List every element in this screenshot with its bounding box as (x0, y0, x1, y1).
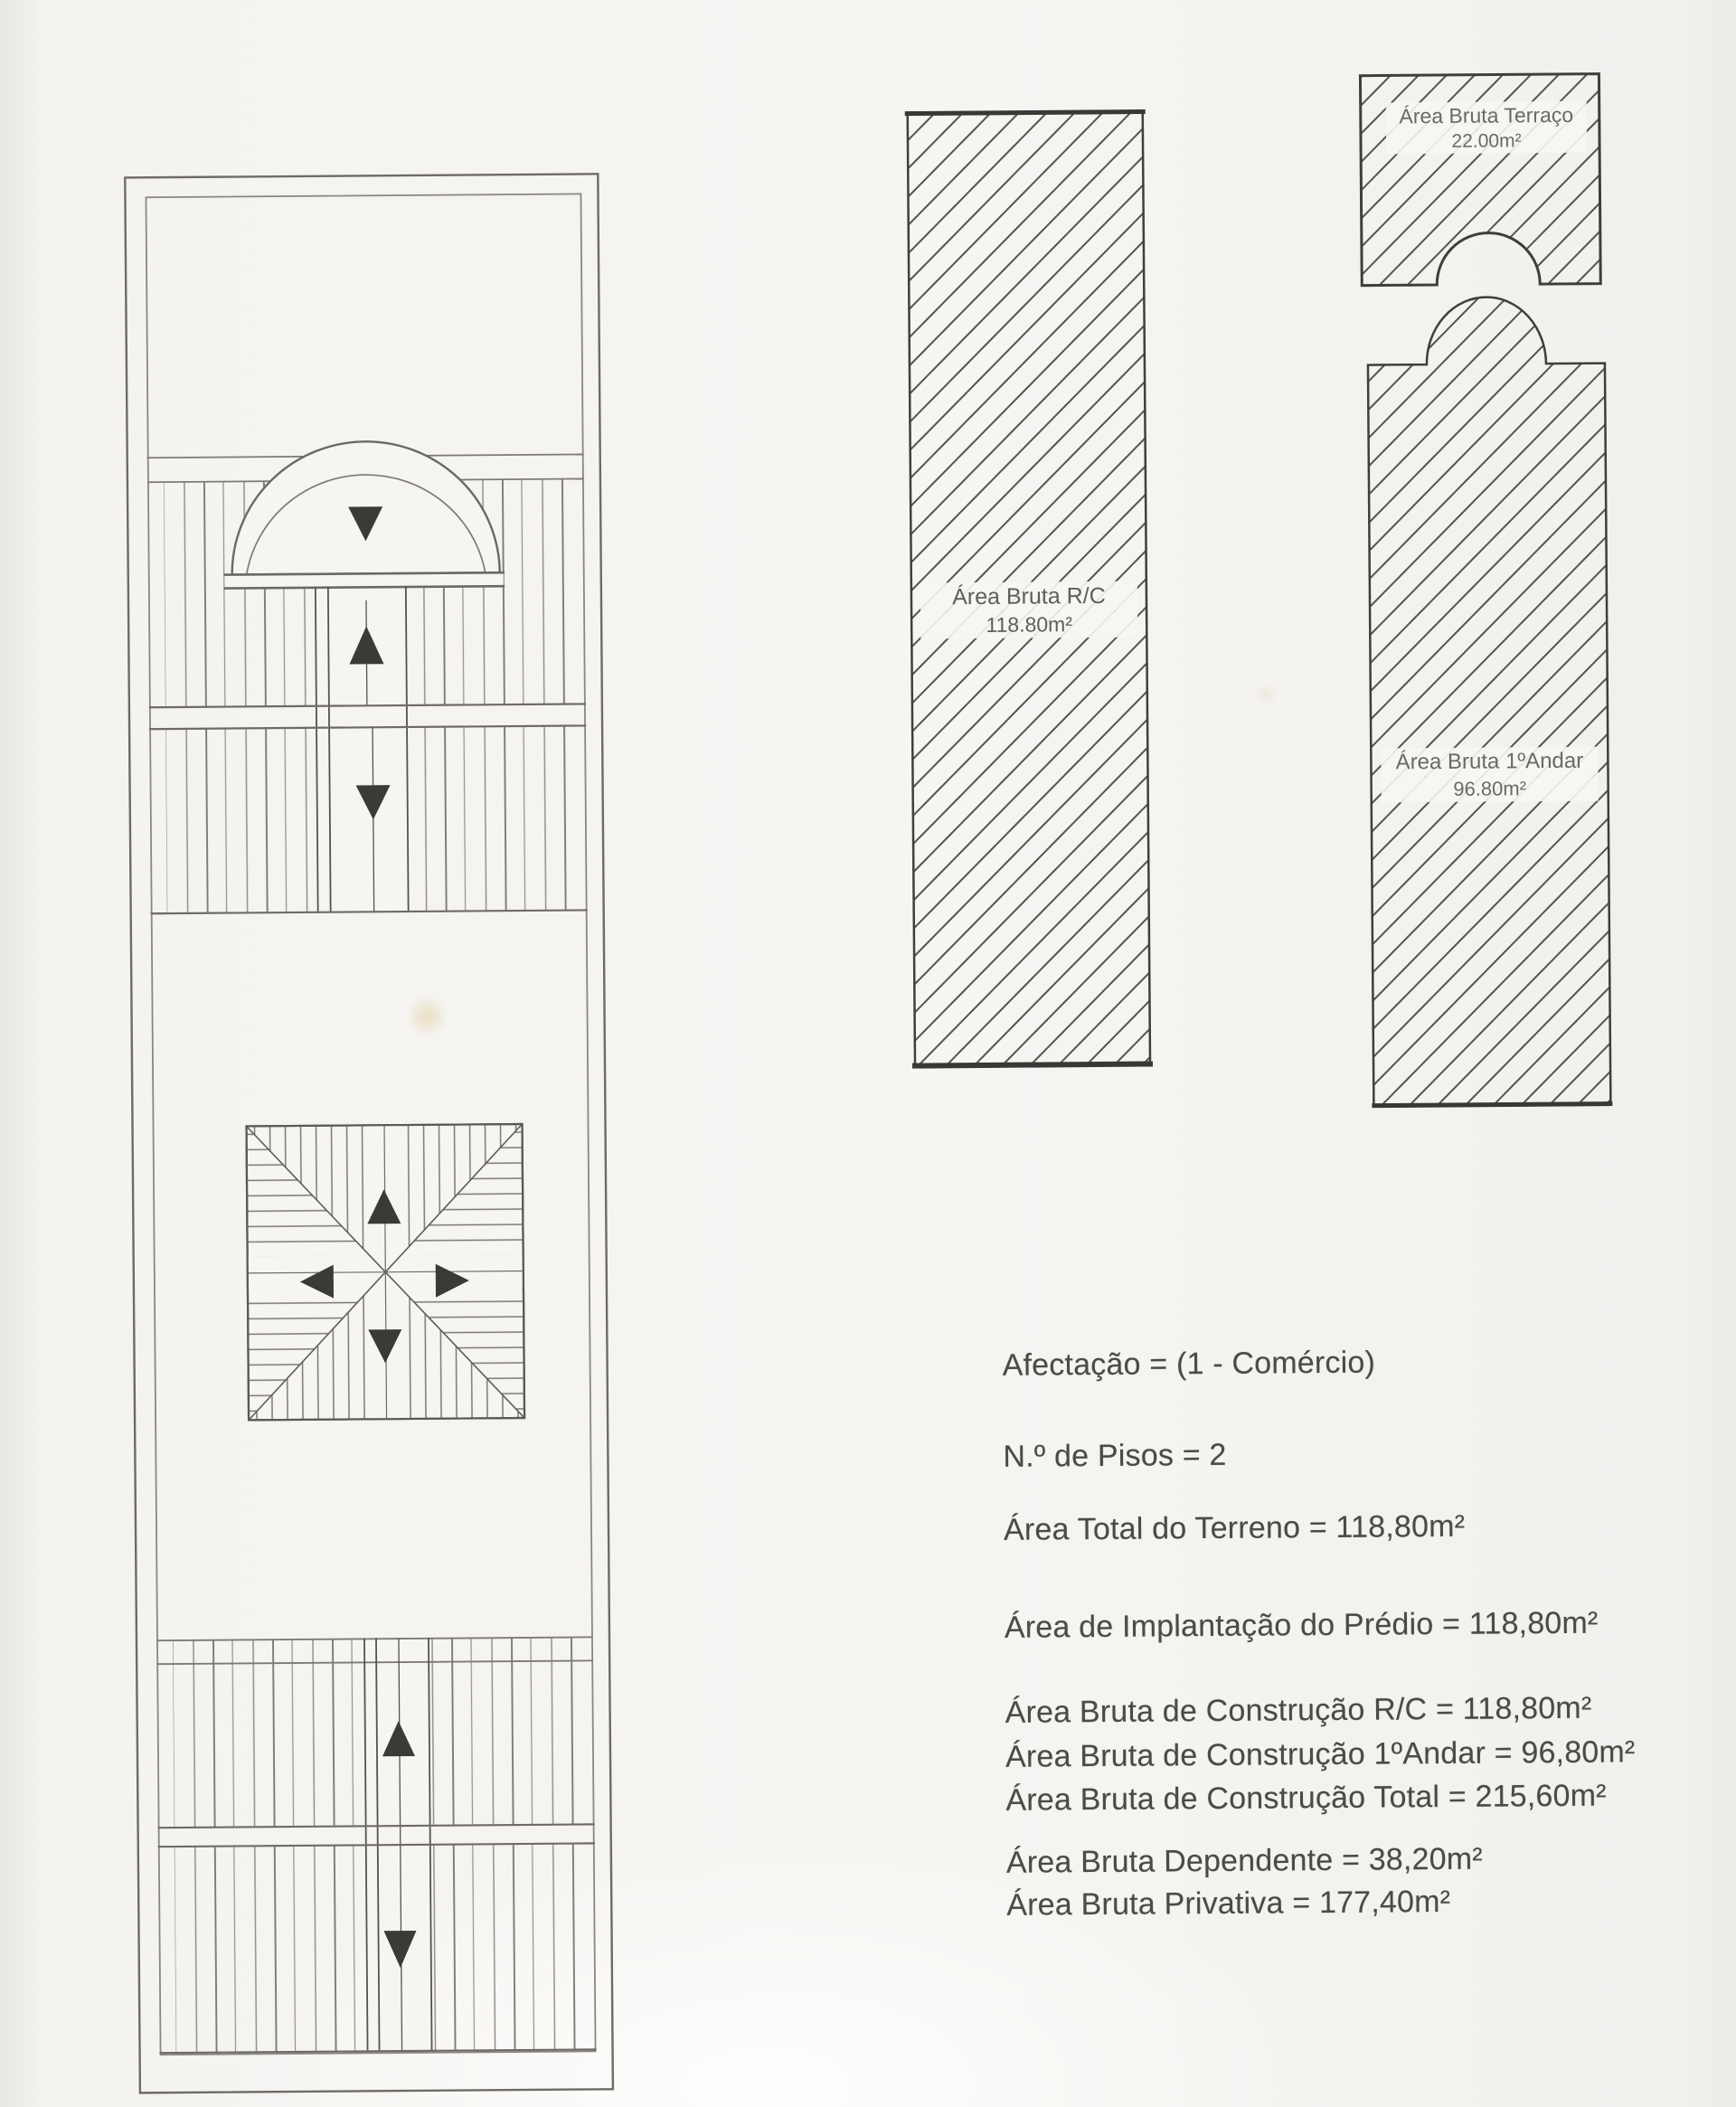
info-area-terreno: Área Total do Terreno = 118,80m² (1004, 1509, 1465, 1548)
scanned-area-plan-sheet: Área Bruta Terraço 22.00m² Área Bruta R/… (0, 0, 1736, 2107)
area-andar-shape (1365, 297, 1612, 1107)
info-afectacao: Afectação = (1 - Comércio) (1002, 1346, 1375, 1384)
area-andar-value: 96.80m² (1382, 776, 1599, 802)
info-privativa: Área Bruta Privativa = 177,40m² (1006, 1885, 1450, 1923)
info-construcao-1a: Área Bruta de Construção 1ºAndar = 96,80… (1005, 1734, 1636, 1774)
area-rc-value: 118.80m² (920, 611, 1137, 639)
area-rc-name: Área Bruta R/C (920, 581, 1137, 613)
scan-content: Área Bruta Terraço 22.00m² Área Bruta R/… (0, 0, 1736, 2107)
area-rc-label: Área Bruta R/C 118.80m² (920, 581, 1137, 639)
area-terraco-value: 22.00m² (1386, 128, 1587, 154)
info-pisos: N.º de Pisos = 2 (1003, 1438, 1226, 1475)
area-terraco-name: Área Bruta Terraço (1386, 101, 1587, 130)
info-construcao-tot: Área Bruta de Construção Total = 215,60m… (1005, 1779, 1607, 1819)
info-dependente: Área Bruta Dependente = 38,20m² (1006, 1842, 1483, 1881)
roof-hatch-square (247, 1124, 525, 1420)
floor-plan-drawing (125, 174, 613, 2093)
area-terraco-label: Área Bruta Terraço 22.00m² (1386, 101, 1587, 155)
info-implantacao: Área de Implantação do Prédio = 118,80m² (1005, 1606, 1599, 1646)
area-andar-label: Área Bruta 1ºAndar 96.80m² (1381, 747, 1598, 802)
info-construcao-rc: Área Bruta de Construção R/C = 118,80m² (1005, 1691, 1591, 1731)
area-andar-name: Área Bruta 1ºAndar (1381, 747, 1598, 778)
